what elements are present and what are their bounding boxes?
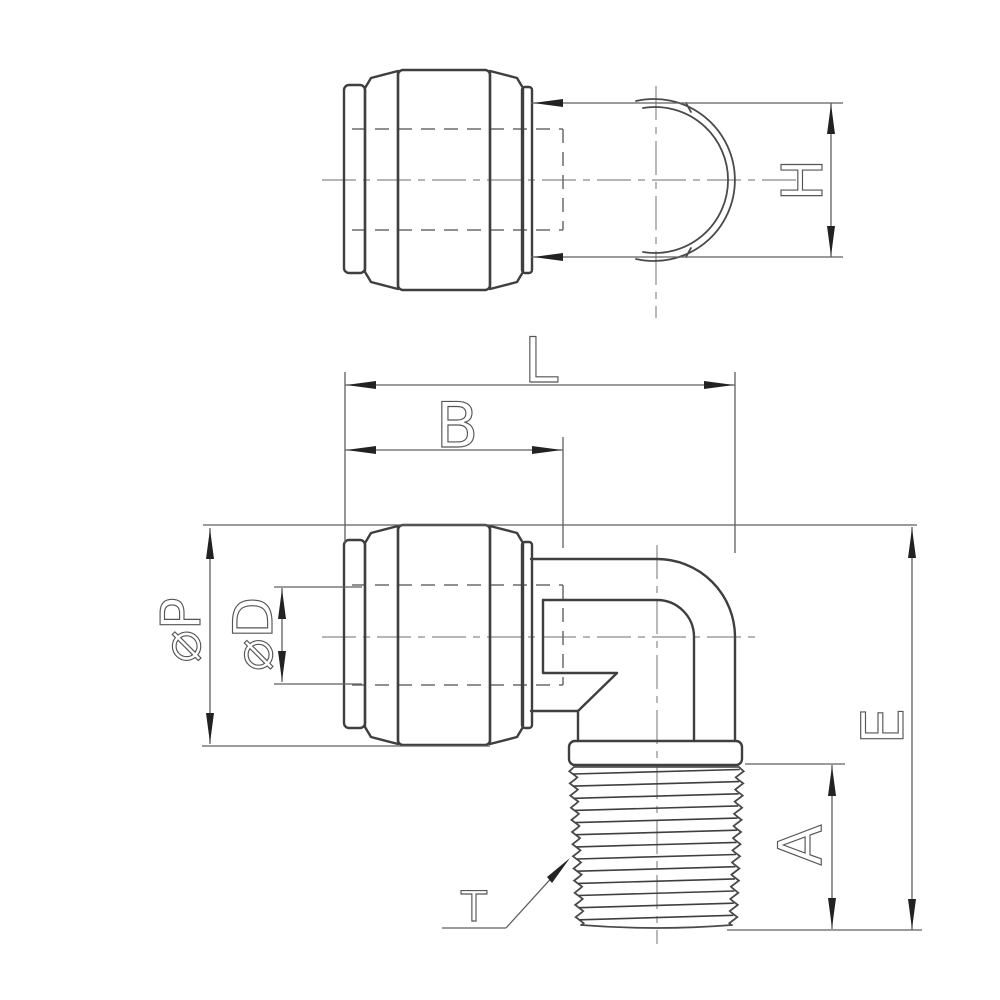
label-insertion-depth: B: [436, 389, 479, 462]
front-view-elbow: [531, 559, 735, 741]
dimension-L: L: [345, 324, 735, 553]
thread-callout: T: [442, 858, 570, 931]
dimension-H: H: [531, 99, 843, 261]
label-thread-length: A: [766, 824, 836, 865]
front-view: L B ⌀P ⌀D: [150, 324, 922, 944]
label-elbow-height: H: [771, 159, 836, 201]
dimension-A: A: [745, 764, 845, 929]
dimension-E: E: [727, 527, 922, 930]
technical-drawing-elbow-fitting: H: [0, 0, 1000, 1000]
label-overall-height: E: [849, 708, 917, 745]
label-thread-callout: T: [460, 882, 487, 931]
dimension-D: ⌀D: [222, 587, 362, 684]
label-overall-length: L: [524, 324, 559, 397]
front-view-body: [344, 525, 532, 745]
top-view: H: [322, 70, 843, 318]
front-view-flange: [569, 741, 742, 765]
label-bore-diameter: ⌀D: [222, 597, 285, 671]
front-view-centerlines: [322, 545, 757, 944]
label-body-diameter: ⌀P: [150, 597, 213, 662]
drawing-svg: H: [0, 0, 1000, 1000]
top-view-centerlines: [322, 86, 800, 318]
